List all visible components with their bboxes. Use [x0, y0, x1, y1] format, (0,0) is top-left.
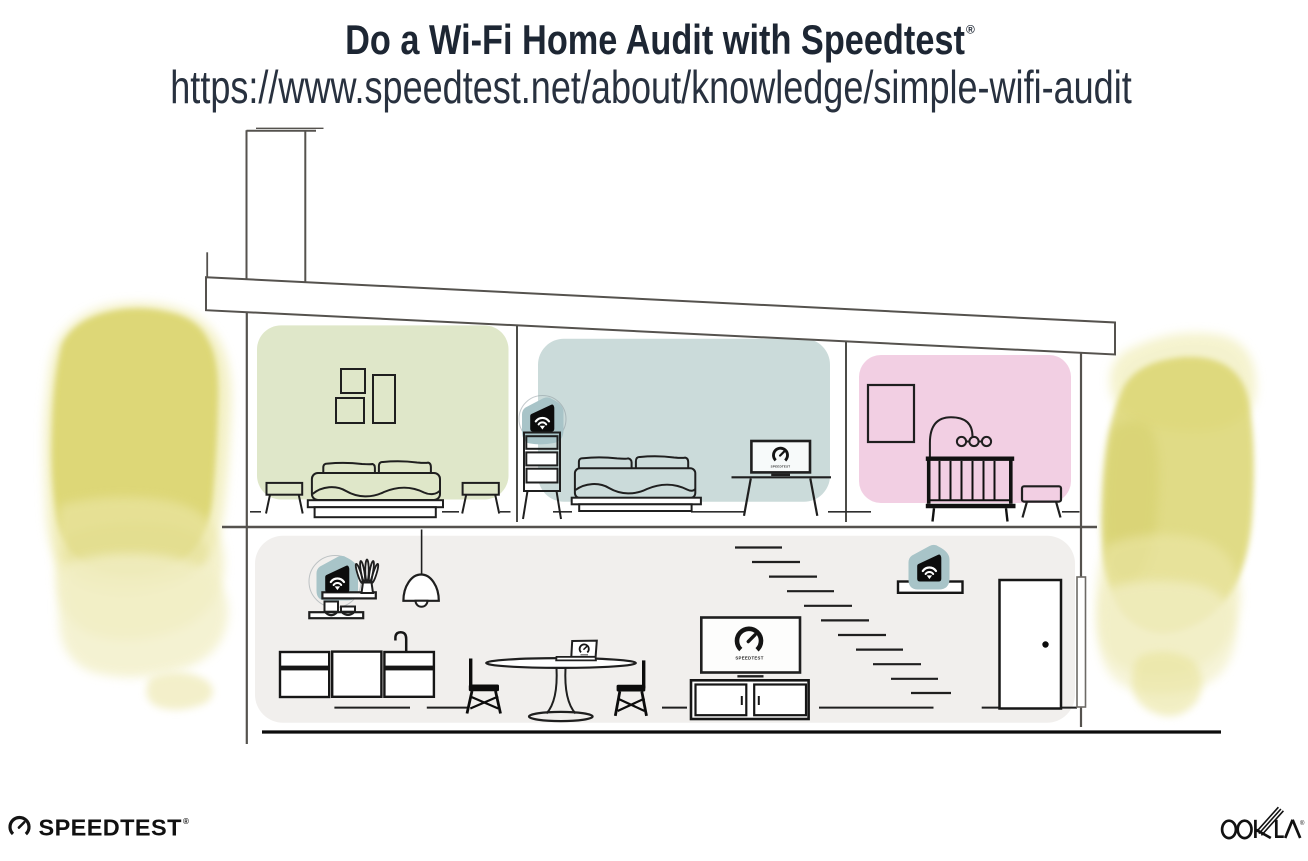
svg-text:®: ®	[183, 817, 189, 826]
svg-text:®: ®	[1300, 820, 1305, 827]
svg-text:SPEEDTEST: SPEEDTEST	[735, 656, 763, 661]
svg-text:SPEEDTEST: SPEEDTEST	[771, 465, 791, 469]
svg-text:Do a Wi-Fi Home Audit with Spe: Do a Wi-Fi Home Audit with Speedtest	[345, 17, 965, 64]
svg-text:https://www.speedtest.net/abou: https://www.speedtest.net/about/knowledg…	[170, 62, 1132, 113]
svg-text:®: ®	[966, 23, 975, 37]
svg-text:SPEEDTEST: SPEEDTEST	[39, 815, 183, 841]
